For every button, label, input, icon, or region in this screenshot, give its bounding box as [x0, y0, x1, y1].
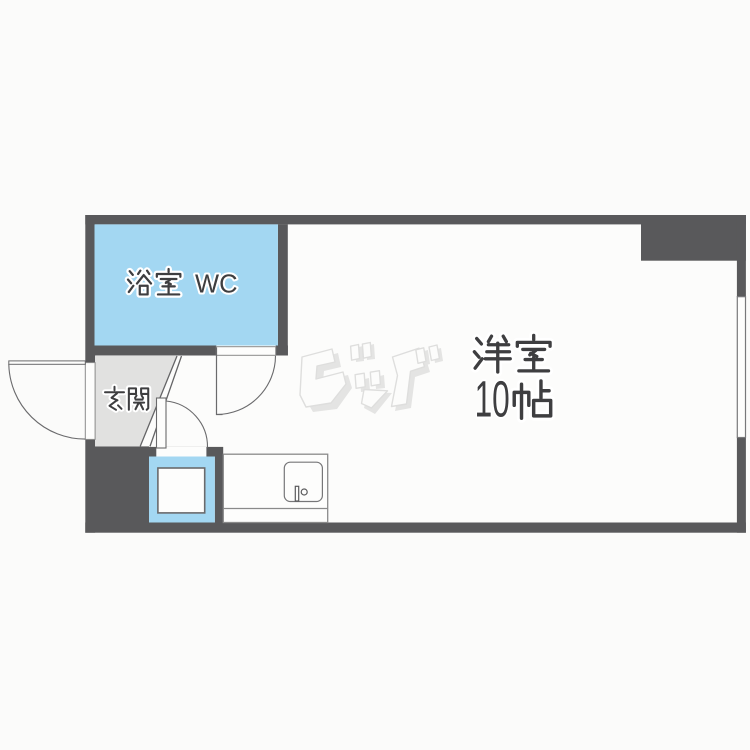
svg-text:10: 10 — [475, 371, 510, 427]
svg-text:WC: WC — [195, 271, 237, 299]
